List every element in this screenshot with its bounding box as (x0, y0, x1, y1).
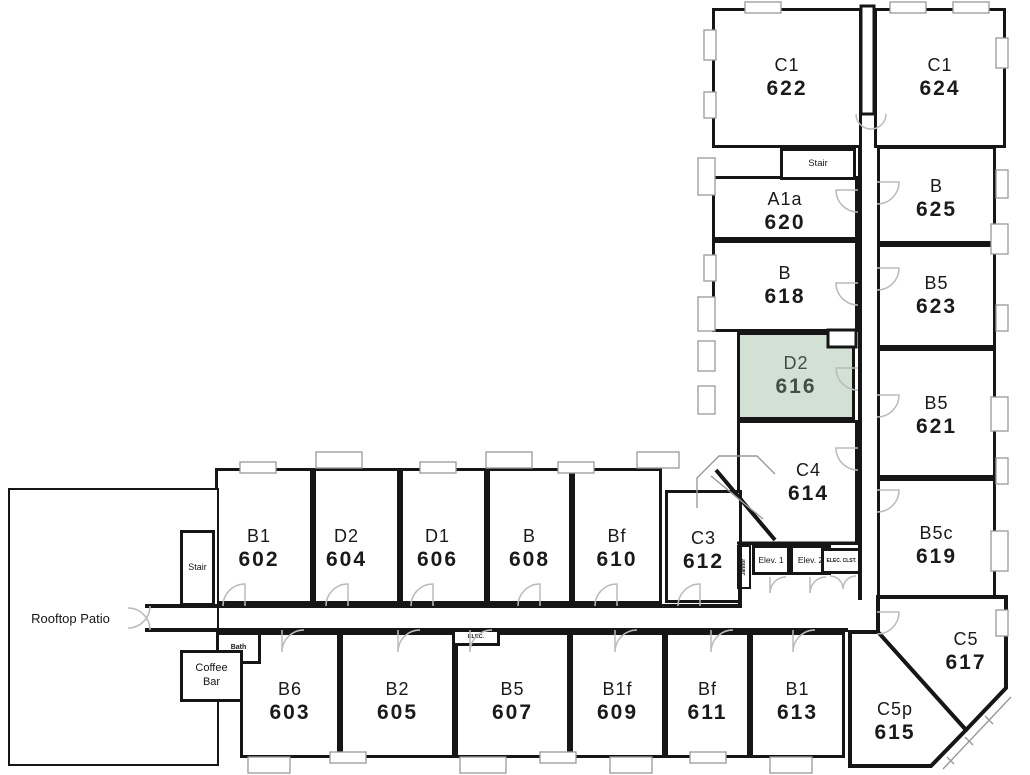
floor-plan: C1622C1624A1a620B625B618B5623D2616B5621C… (0, 0, 1030, 775)
coffee-bar-label: Coffee Bar (195, 662, 227, 690)
elevator-1-label: Elev. 1 (758, 555, 783, 566)
elec-closet-label: ELEC. CLST. (826, 558, 856, 564)
elevator-1: Elev. 1 (752, 545, 790, 575)
elec-closet: ELEC. CLST. (821, 548, 862, 574)
service-rooms-layer: Rooftop PatioStairStairElev. 1Elev. 2ELE… (0, 0, 1030, 775)
elevator-2-label: Elev. 2 (798, 555, 823, 566)
janitor: Janitor (737, 545, 751, 589)
stair-top: Stair (780, 148, 856, 180)
janitor-label: Janitor (741, 559, 747, 576)
stair-west: Stair (180, 530, 215, 606)
elec-room-label: ELEC. (468, 634, 484, 641)
stair-top-label: Stair (808, 158, 828, 170)
elec-room: ELEC. (452, 628, 500, 646)
stair-west-label: Stair (188, 562, 207, 573)
rooftop-patio-label: Rooftop Patio (31, 611, 110, 627)
coffee-bar: Coffee Bar (180, 650, 243, 702)
